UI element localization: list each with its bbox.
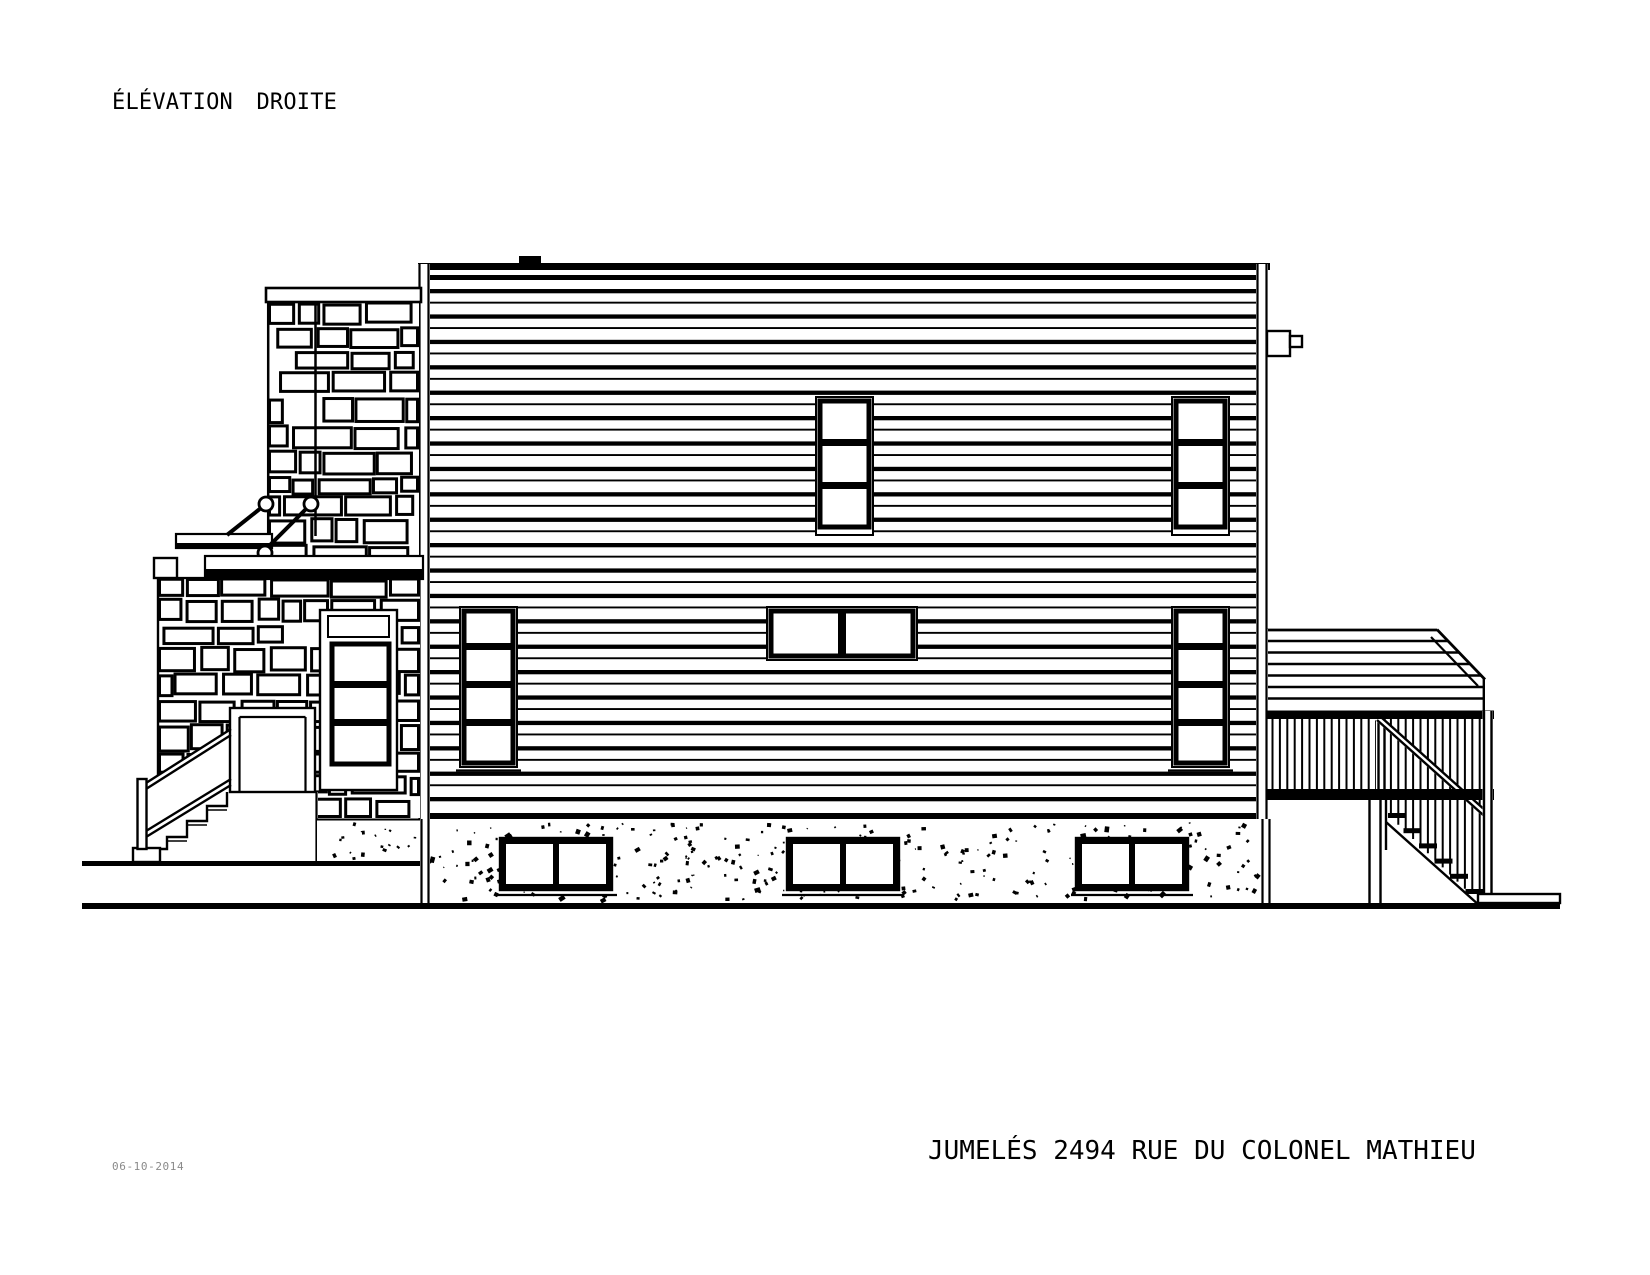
right-porch	[1256, 629, 1560, 906]
foundation	[420, 819, 1271, 905]
elevation-drawing-sheet: ÉLÉVATION DROITE JUMELÉS 2494 RUE DU COL…	[0, 0, 1650, 1275]
main-building	[418, 256, 1302, 821]
house-right-elevation-line-drawing	[0, 0, 1650, 1275]
date-stamp: 06-10-2014	[112, 1161, 184, 1172]
project-title: JUMELÉS 2494 RUE DU COLONEL MATHIEU	[928, 1138, 1476, 1164]
